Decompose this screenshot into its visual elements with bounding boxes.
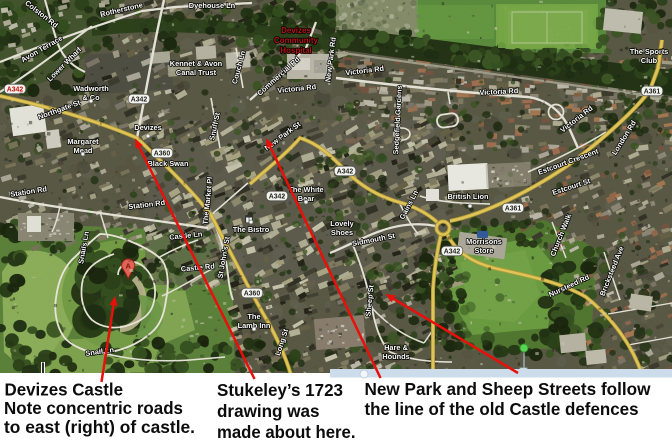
svg-text:made about here.: made about here. [217, 422, 356, 442]
svg-text:Devizes Castle: Devizes Castle [5, 380, 124, 400]
svg-text:Stukeley’s 1723: Stukeley’s 1723 [217, 380, 343, 400]
svg-text:to east (right) of castle.: to east (right) of castle. [4, 417, 195, 437]
svg-text:Note concentric roads: Note concentric roads [4, 398, 183, 418]
svg-text:the line of the old Castle def: the line of the old Castle defences [365, 399, 639, 419]
svg-text:New Park and Sheep Streets fol: New Park and Sheep Streets follow [365, 379, 651, 399]
svg-text:drawing was: drawing was [217, 401, 320, 421]
